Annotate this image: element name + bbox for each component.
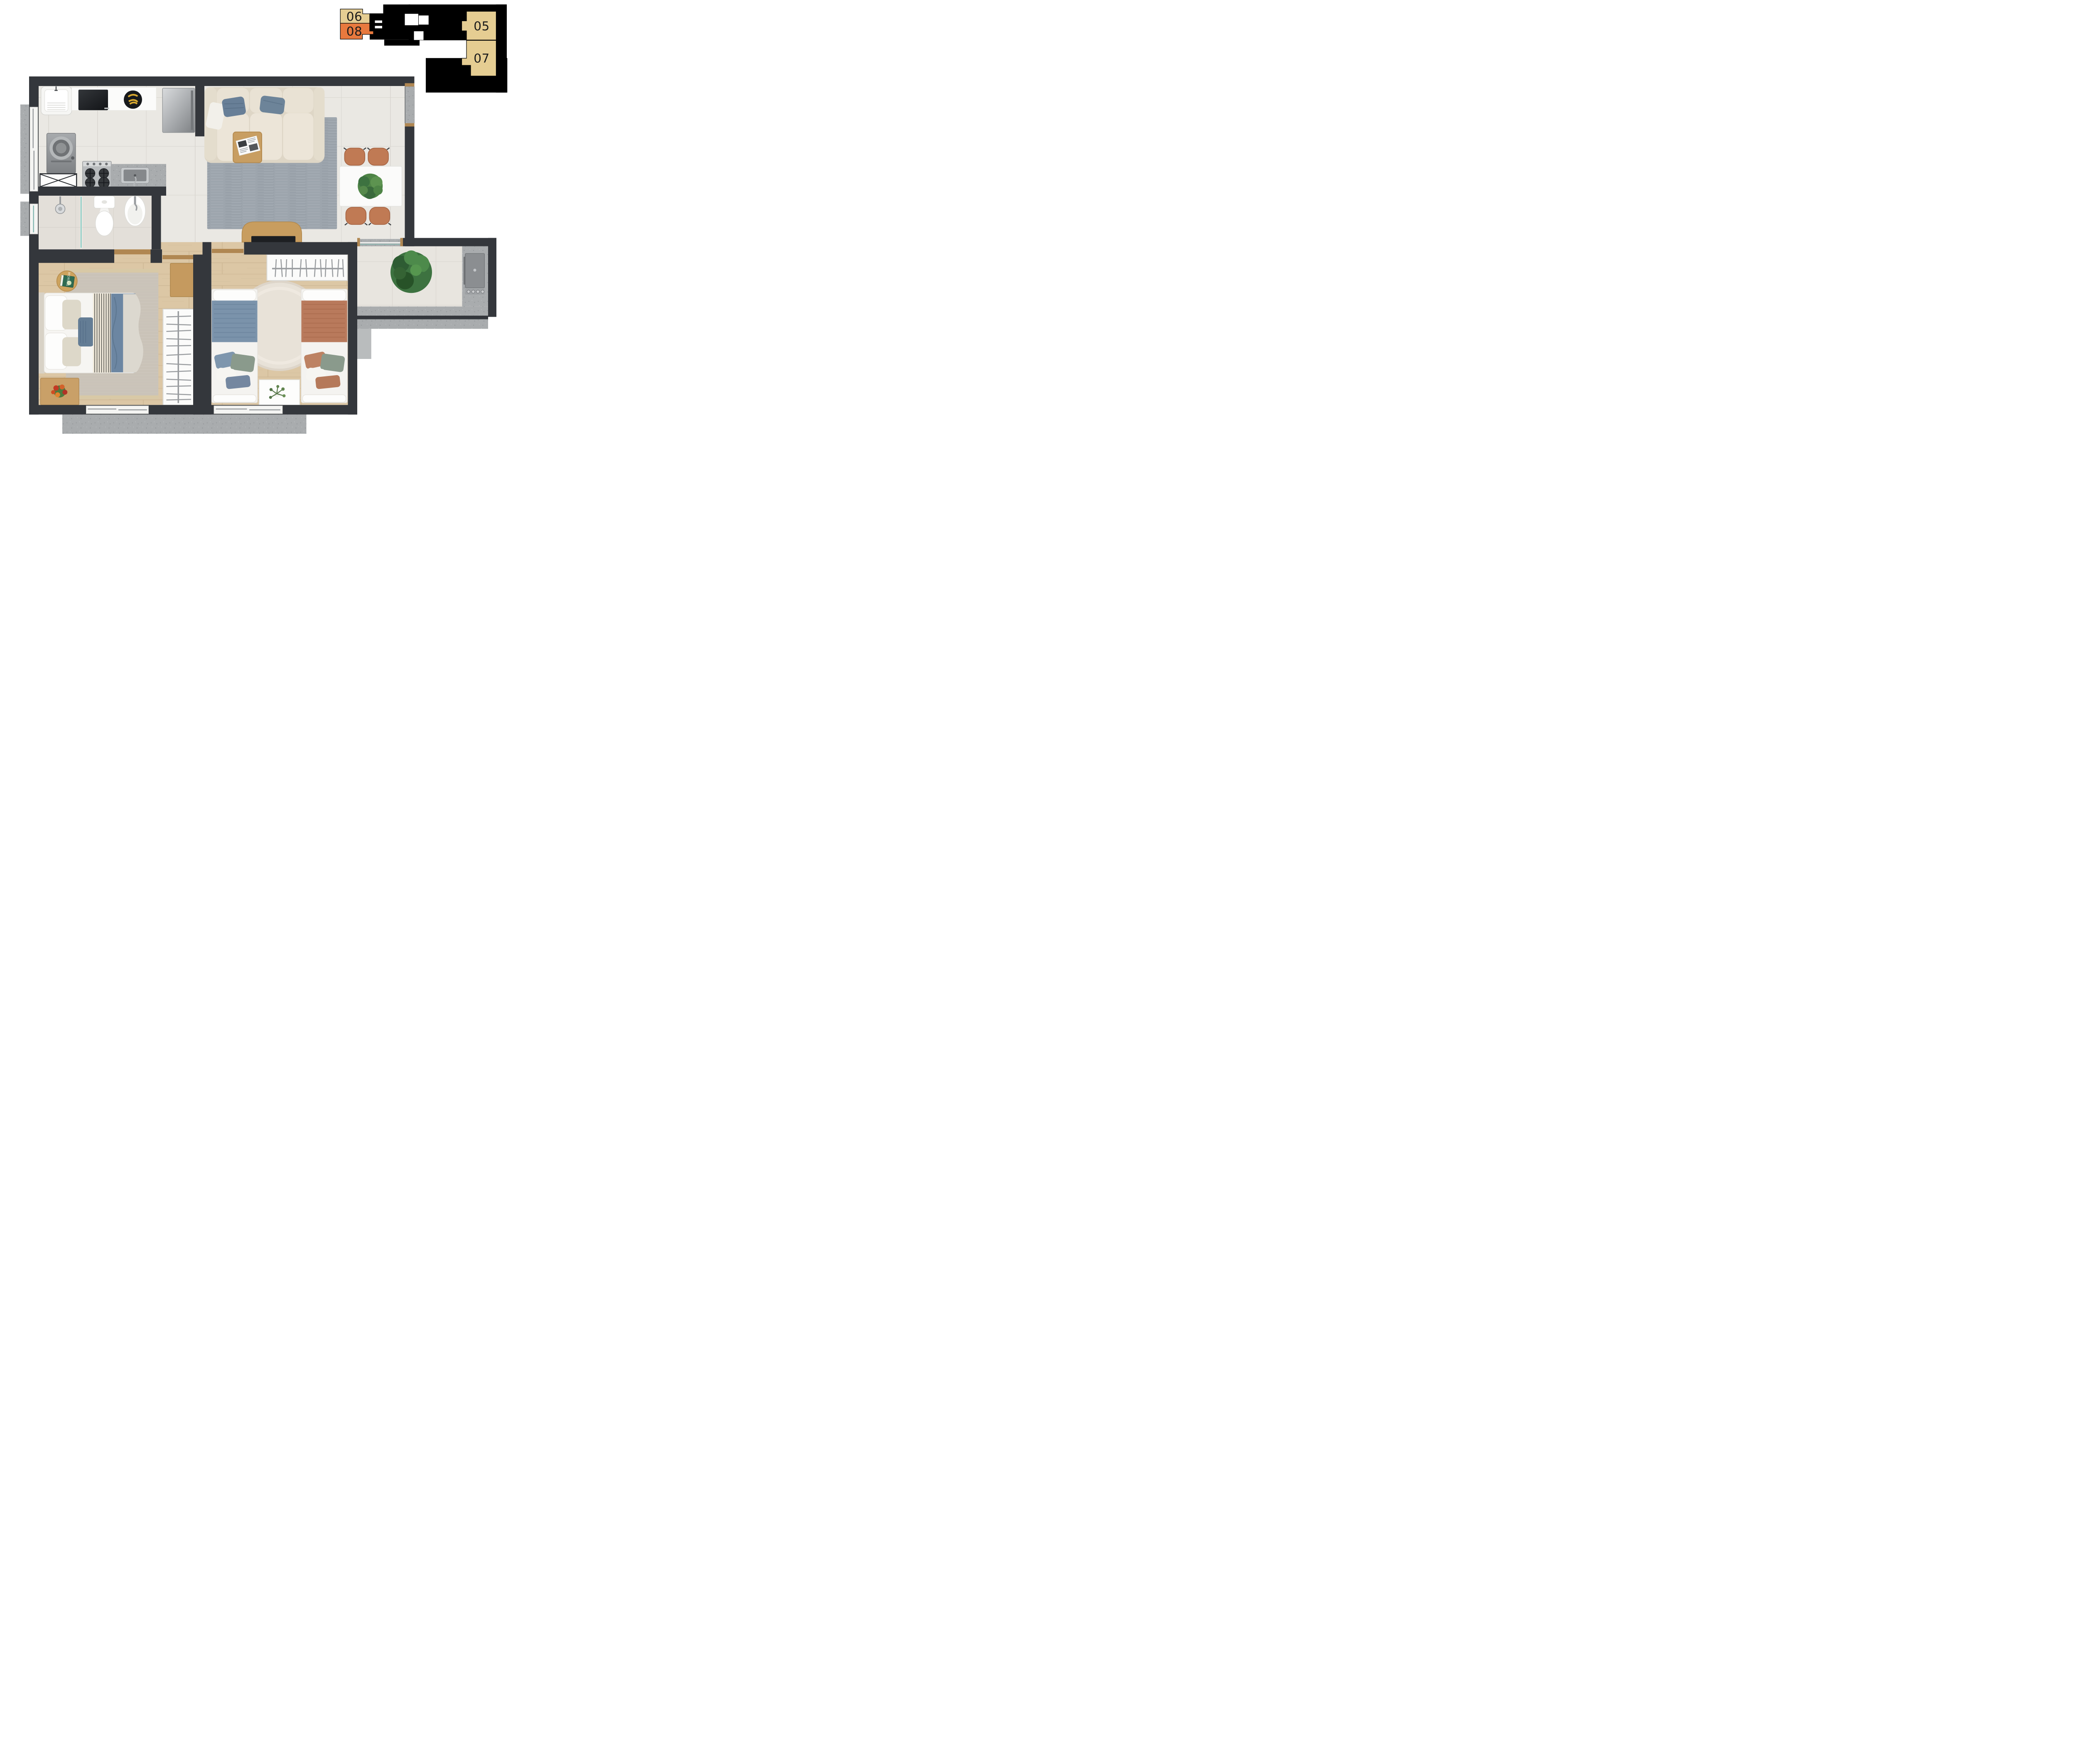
living-side-window [405, 83, 415, 126]
double-bed [39, 292, 143, 373]
kitchen-window [30, 107, 38, 192]
bathroom-window [30, 204, 38, 234]
unit-label-07: 07 [474, 51, 490, 65]
unit-label-05: 05 [474, 19, 490, 33]
balcony-plant [390, 251, 432, 293]
laundry-tank [41, 86, 72, 115]
master-door-threshold [162, 255, 193, 259]
master-wardrobe [163, 309, 194, 405]
tv [251, 236, 295, 243]
pillow-blue [225, 375, 250, 389]
unit-label-08: 08 [346, 24, 363, 38]
single-bed-blue [212, 289, 258, 403]
pillow [213, 290, 256, 301]
kids-side-table [259, 380, 300, 405]
gas-stove [83, 161, 111, 188]
base-cabinet [40, 174, 76, 187]
balcony-parapet-sill [357, 307, 488, 316]
striped-runner [93, 293, 112, 373]
nightstand-flowers [41, 378, 79, 405]
master-window [86, 406, 149, 414]
floor-plan-page: MORRIS [0, 0, 519, 441]
round-side-table: MORRIS [57, 271, 77, 291]
shower-glass-partition [80, 196, 82, 248]
tv-panel [242, 222, 302, 245]
unit-label-06: 06 [346, 10, 363, 24]
blue-blanket [212, 301, 258, 342]
terracotta-blanket [302, 301, 347, 342]
balcony-sliding-door [357, 238, 403, 246]
coffee-table [233, 132, 262, 163]
single-bed-terracotta [301, 289, 347, 403]
pillow [303, 290, 346, 301]
bedroom2-door-threshold [212, 249, 243, 253]
granite-sink-counter [111, 164, 166, 188]
master-bedroom: MORRIS [39, 263, 194, 405]
kids-wardrobe [267, 255, 348, 281]
fruit-bowl [124, 91, 142, 109]
bathroom-sink [125, 196, 145, 226]
bedroom2-window [214, 406, 282, 414]
toilet [94, 196, 115, 236]
countertop-appliance [79, 90, 108, 111]
bathroom-door-threshold [114, 249, 151, 254]
sofa [204, 87, 324, 163]
master-desk [170, 263, 194, 297]
refrigerator [162, 88, 195, 133]
washing-machine [47, 133, 76, 174]
floor-plan-canvas: MORRIS [0, 0, 519, 441]
pillow-terracotta [315, 375, 341, 389]
